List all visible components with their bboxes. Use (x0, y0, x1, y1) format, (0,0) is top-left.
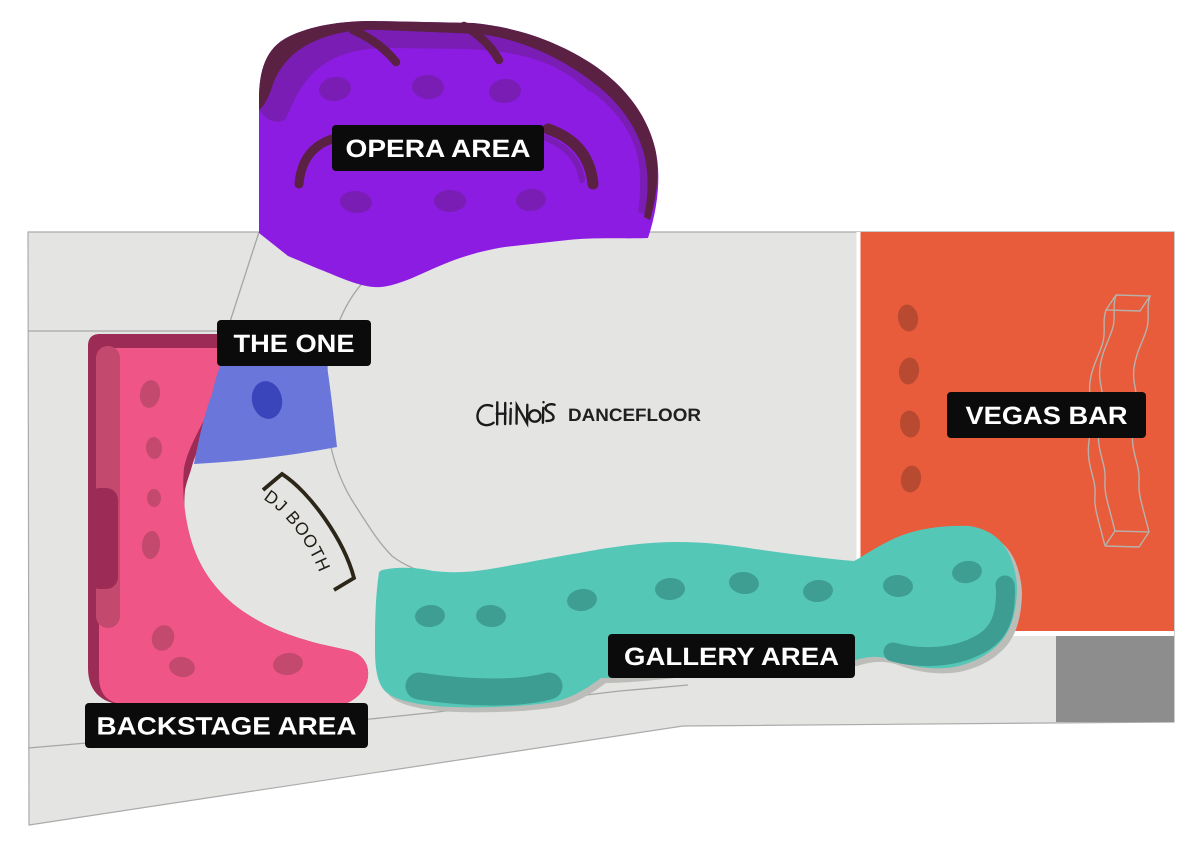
svg-text:GALLERY AREA: GALLERY AREA (624, 643, 839, 671)
svg-text:BACKSTAGE AREA: BACKSTAGE AREA (97, 713, 357, 741)
svg-text:VEGAS BAR: VEGAS BAR (966, 402, 1128, 430)
svg-text:DANCEFLOOR: DANCEFLOOR (568, 405, 701, 425)
svg-text:THE ONE: THE ONE (234, 330, 355, 358)
svg-text:OPERA AREA: OPERA AREA (346, 135, 531, 163)
